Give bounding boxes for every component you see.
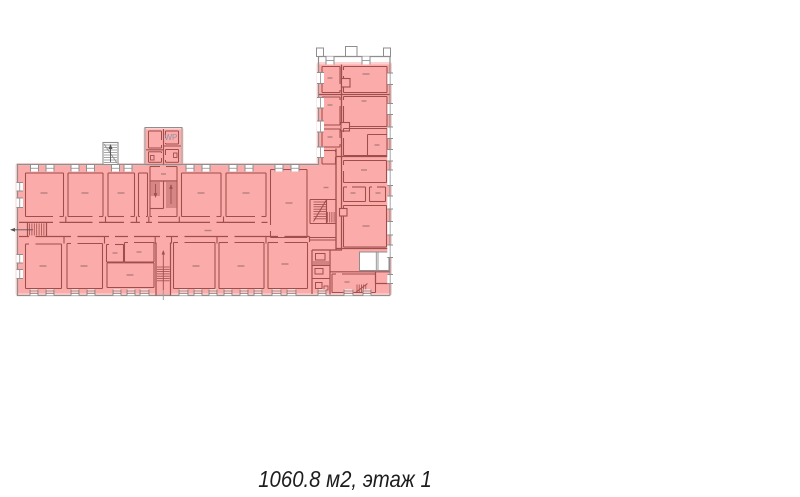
svg-text:WP: WP [165,133,178,142]
